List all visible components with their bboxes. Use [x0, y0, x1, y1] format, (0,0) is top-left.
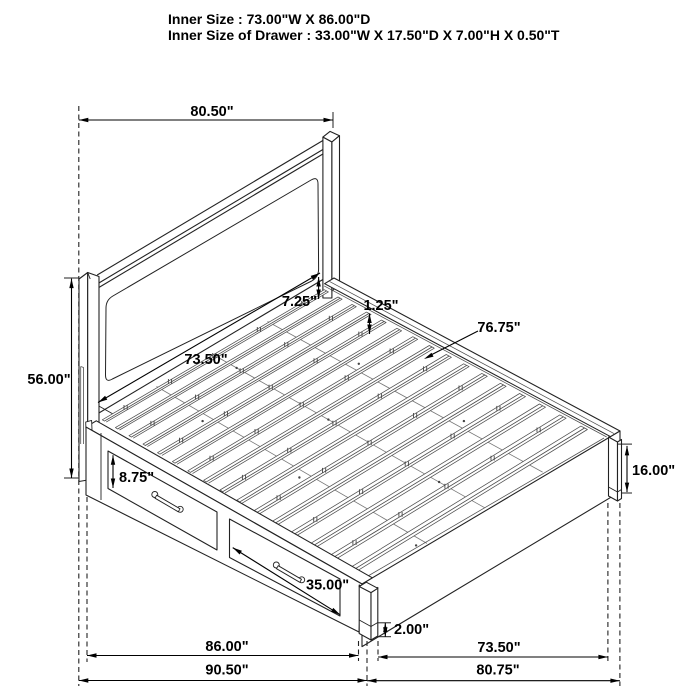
svg-text:76.75": 76.75" [477, 320, 520, 336]
svg-text:73.50": 73.50" [477, 640, 520, 656]
svg-text:80.75": 80.75" [476, 663, 519, 679]
svg-text:80.50": 80.50" [190, 104, 233, 120]
svg-text:2.00": 2.00" [394, 622, 429, 638]
svg-text:56.00": 56.00" [27, 372, 70, 388]
svg-text:86.00": 86.00" [205, 639, 248, 655]
svg-text:7.25": 7.25" [282, 294, 317, 310]
svg-text:90.50": 90.50" [205, 663, 248, 679]
svg-text:35.00": 35.00" [306, 578, 349, 594]
svg-text:16.00": 16.00" [632, 463, 675, 479]
svg-text:1.25": 1.25" [363, 298, 398, 314]
svg-text:73.50": 73.50" [184, 352, 227, 368]
svg-text:8.75": 8.75" [119, 470, 154, 486]
